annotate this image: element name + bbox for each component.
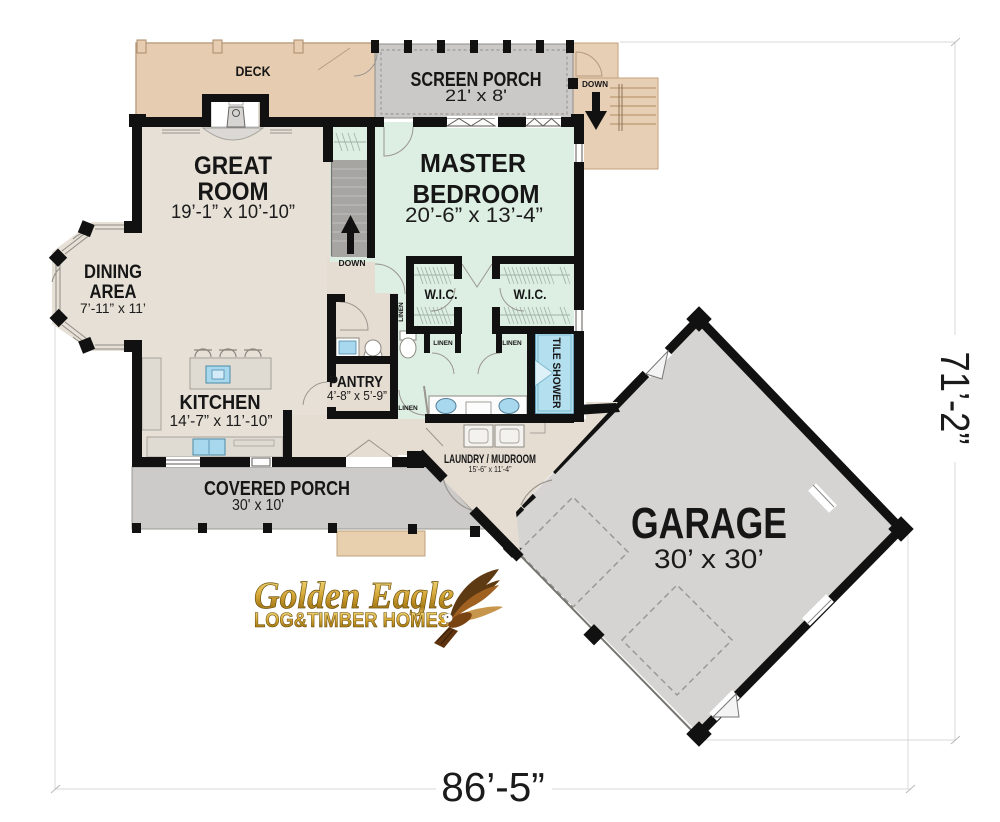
- svg-text:DOWN: DOWN: [339, 258, 366, 268]
- svg-text:DOWN: DOWN: [582, 80, 608, 89]
- svg-text:30' x 10': 30' x 10': [232, 497, 284, 514]
- svg-text:LINEN: LINEN: [502, 340, 522, 347]
- svg-text:GARAGE: GARAGE: [631, 499, 787, 548]
- svg-text:W.I.C.: W.I.C.: [514, 286, 547, 302]
- svg-text:14’-7” x 11’-10”: 14’-7” x 11’-10”: [170, 413, 273, 430]
- svg-text:LINEN: LINEN: [433, 340, 453, 347]
- svg-text:7’-11” x 11’: 7’-11” x 11’: [80, 300, 146, 316]
- svg-text:DECK: DECK: [236, 63, 271, 79]
- svg-text:21' x 8': 21' x 8': [445, 86, 507, 105]
- svg-text:71’-2”: 71’-2”: [932, 352, 978, 445]
- svg-text:15'-6” x 11'-4”: 15'-6” x 11'-4”: [469, 464, 512, 474]
- svg-text:MASTER: MASTER: [420, 148, 526, 178]
- svg-text:20’-6” x 13’-4”: 20’-6” x 13’-4”: [405, 204, 543, 227]
- svg-text:TILE SHOWER: TILE SHOWER: [550, 338, 562, 409]
- svg-text:W.I.C.: W.I.C.: [425, 286, 458, 302]
- svg-text:GREAT: GREAT: [194, 152, 272, 180]
- svg-text:19’-1” x 10’-10”: 19’-1” x 10’-10”: [171, 201, 295, 223]
- svg-text:KITCHEN: KITCHEN: [180, 392, 261, 414]
- svg-text:LINEN: LINEN: [398, 405, 418, 412]
- svg-text:LOG&TIMBER HOMES: LOG&TIMBER HOMES: [254, 609, 450, 632]
- svg-text:30’ x 30’: 30’ x 30’: [654, 544, 764, 574]
- svg-text:86’-5”: 86’-5”: [441, 764, 545, 810]
- svg-text:DINING: DINING: [84, 262, 142, 283]
- svg-text:4’-8” x 5’-9”: 4’-8” x 5’-9”: [327, 388, 387, 403]
- svg-text:LINEN: LINEN: [398, 302, 405, 322]
